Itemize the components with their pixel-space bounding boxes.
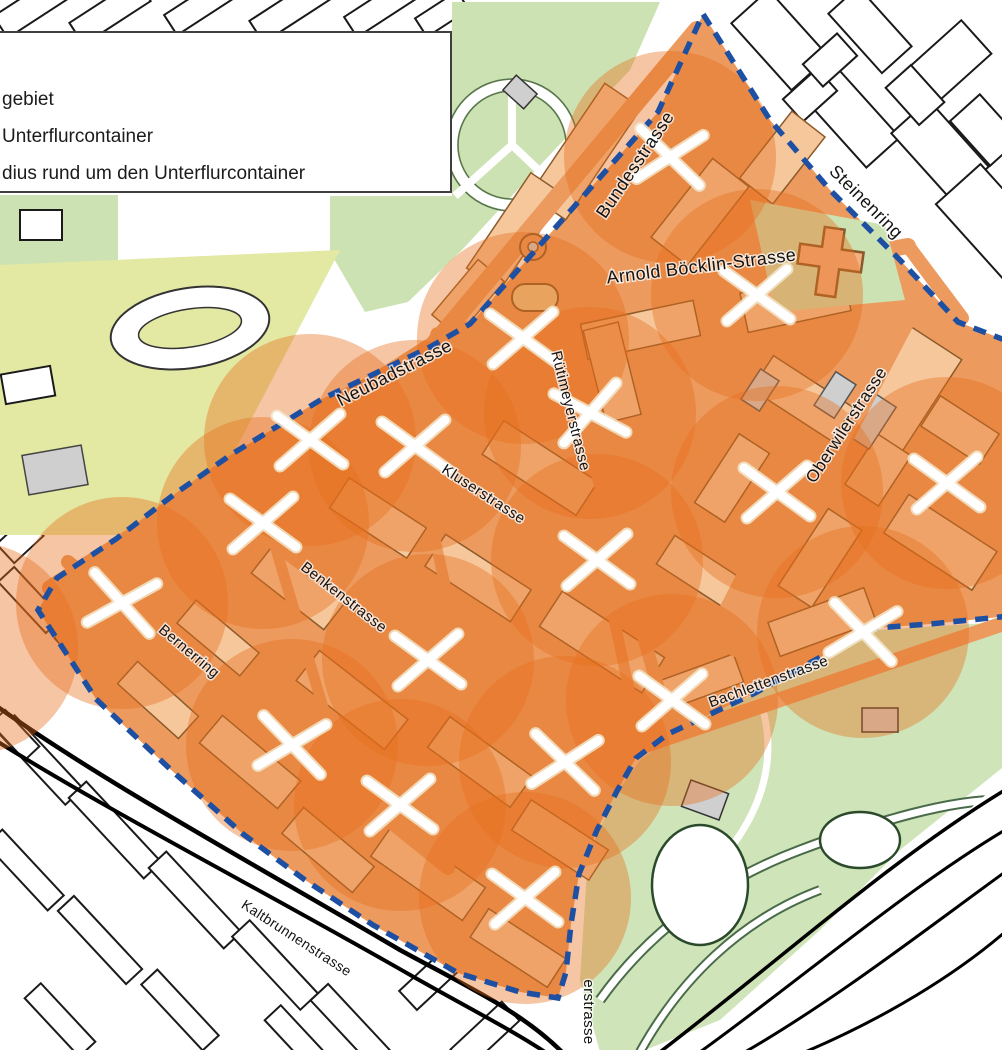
zoo-pond [652,825,748,945]
legend-item-pilot-area: gebiet [2,81,450,118]
legend-item-radius: dius rund um den Unterflurcontainer [2,155,450,192]
legend-box: gebiet Unterflurcontainer dius rund um d… [0,31,452,193]
legend-item-unterflurcontainer: Unterflurcontainer [2,118,450,155]
street-label: erstrasse [580,979,597,1044]
map-page: BundesstrasseSteinenringArnold Böcklin-S… [0,0,1002,1050]
zoo-pond [820,812,900,868]
